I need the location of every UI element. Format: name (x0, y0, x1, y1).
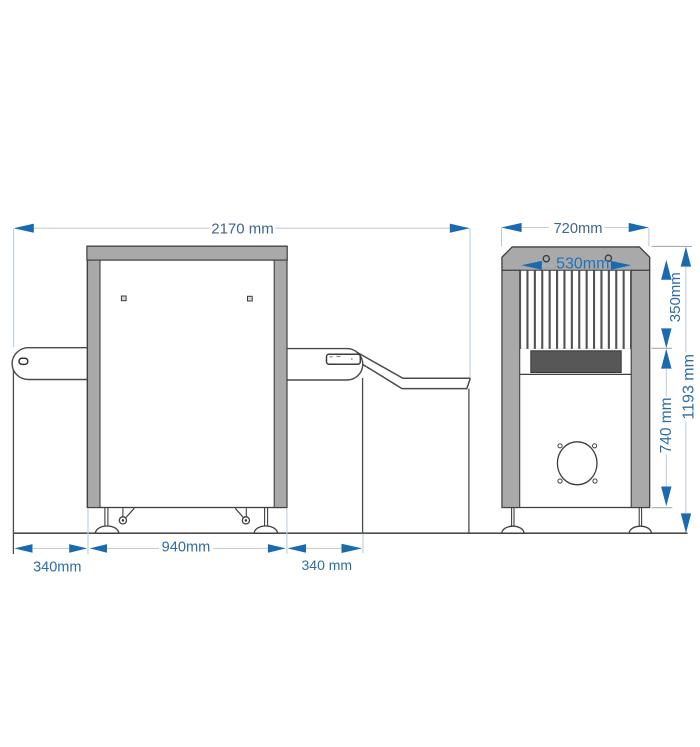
svg-text:940mm: 940mm (162, 540, 211, 556)
svg-text:340 mm: 340 mm (302, 557, 353, 573)
svg-text:740 mm: 740 mm (658, 397, 675, 453)
svg-text:1193 mm: 1193 mm (680, 354, 697, 420)
svg-text:720mm: 720mm (554, 221, 603, 237)
svg-text:530mm: 530mm (556, 256, 609, 273)
svg-text:2170 mm: 2170 mm (211, 221, 274, 238)
svg-text:350mm: 350mm (667, 272, 684, 322)
svg-text:340mm: 340mm (33, 559, 81, 575)
